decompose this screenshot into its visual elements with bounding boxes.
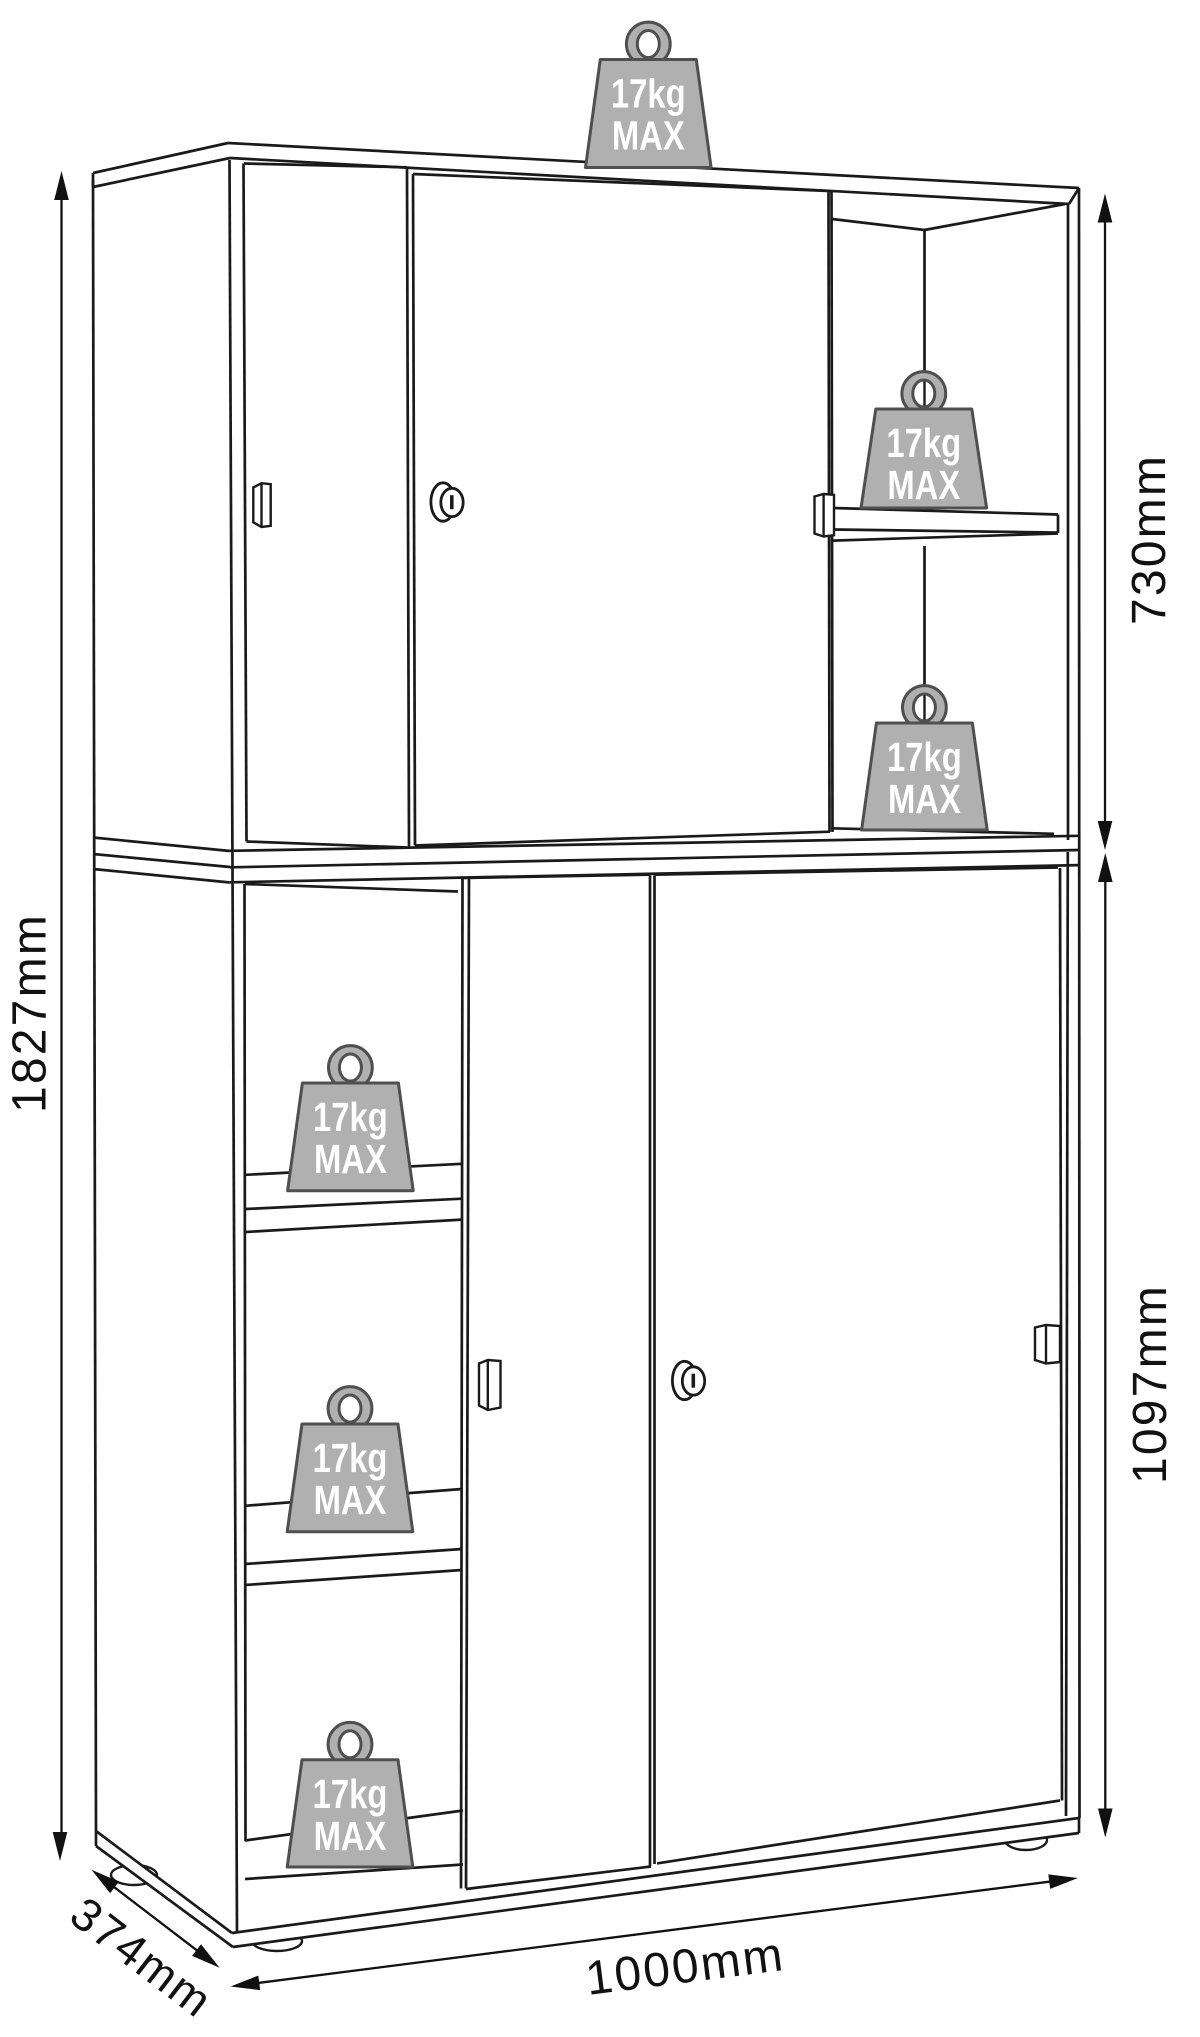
svg-text:1097mm: 1097mm bbox=[1124, 1284, 1177, 1484]
svg-text:17kg: 17kg bbox=[611, 70, 686, 116]
svg-text:17kg: 17kg bbox=[886, 419, 961, 465]
svg-text:17kg: 17kg bbox=[887, 733, 962, 779]
svg-text:17kg: 17kg bbox=[313, 1093, 388, 1139]
svg-text:MAX: MAX bbox=[314, 1476, 387, 1522]
svg-text:MAX: MAX bbox=[314, 1135, 387, 1181]
svg-text:1000mm: 1000mm bbox=[583, 1928, 788, 2006]
svg-text:MAX: MAX bbox=[888, 775, 961, 821]
svg-text:MAX: MAX bbox=[612, 112, 685, 158]
svg-text:17kg: 17kg bbox=[313, 1434, 388, 1480]
svg-text:1827mm: 1827mm bbox=[4, 913, 57, 1113]
svg-text:MAX: MAX bbox=[887, 461, 960, 507]
svg-text:730mm: 730mm bbox=[1123, 454, 1176, 625]
svg-text:MAX: MAX bbox=[314, 1812, 387, 1858]
svg-text:17kg: 17kg bbox=[313, 1770, 388, 1816]
